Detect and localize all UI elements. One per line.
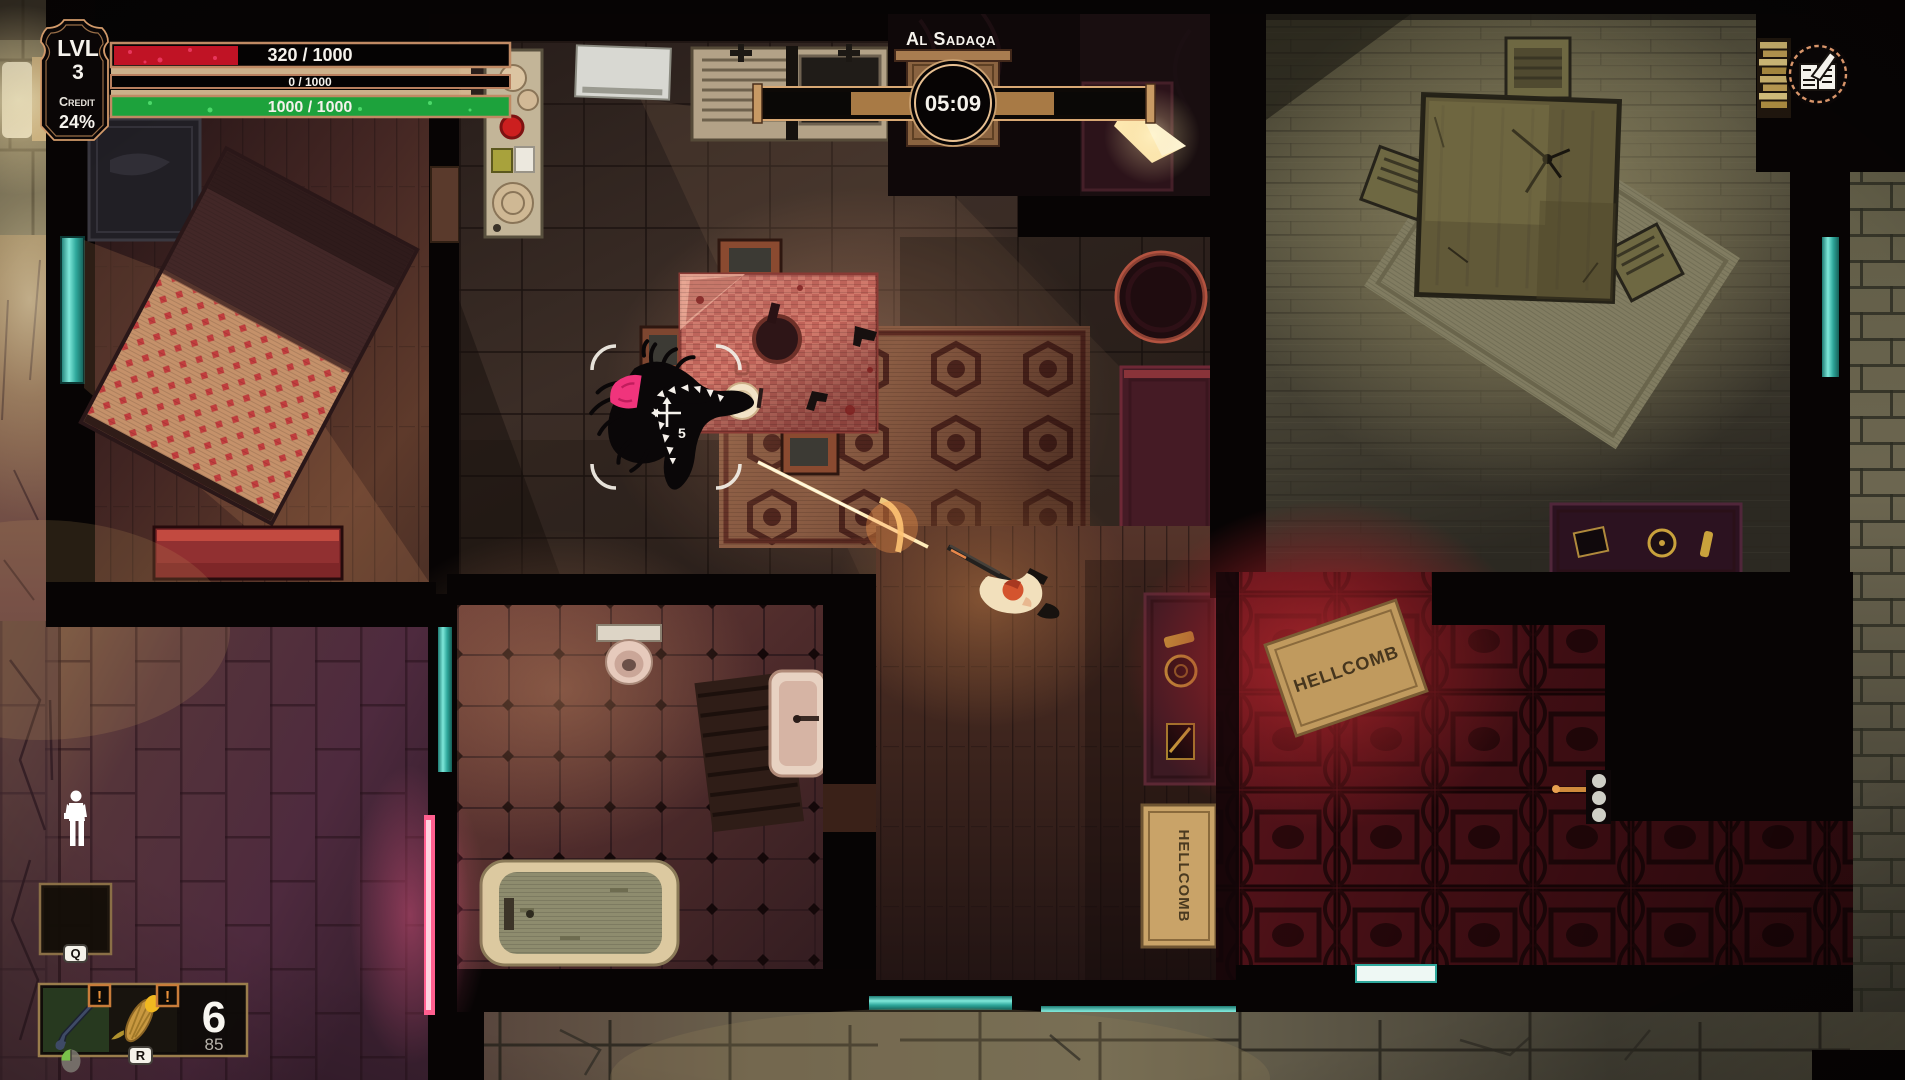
svg-text:!: ! xyxy=(165,989,170,1006)
svg-text:24%: 24% xyxy=(59,112,95,132)
svg-text:0 / 1000: 0 / 1000 xyxy=(288,75,332,89)
svg-text:05:09: 05:09 xyxy=(925,91,981,116)
svg-text:LVL: LVL xyxy=(57,35,99,61)
svg-text:85: 85 xyxy=(205,1035,224,1054)
svg-text:3: 3 xyxy=(72,61,84,84)
svg-text:1000 / 1000: 1000 / 1000 xyxy=(268,99,353,116)
svg-text:Al Sadaqa: Al Sadaqa xyxy=(906,29,996,49)
svg-text:!: ! xyxy=(97,989,102,1006)
svg-text:Q: Q xyxy=(70,946,80,961)
svg-text:320 / 1000: 320 / 1000 xyxy=(267,45,352,65)
svg-text:Credit: Credit xyxy=(59,95,96,109)
svg-text:R: R xyxy=(136,1048,146,1063)
